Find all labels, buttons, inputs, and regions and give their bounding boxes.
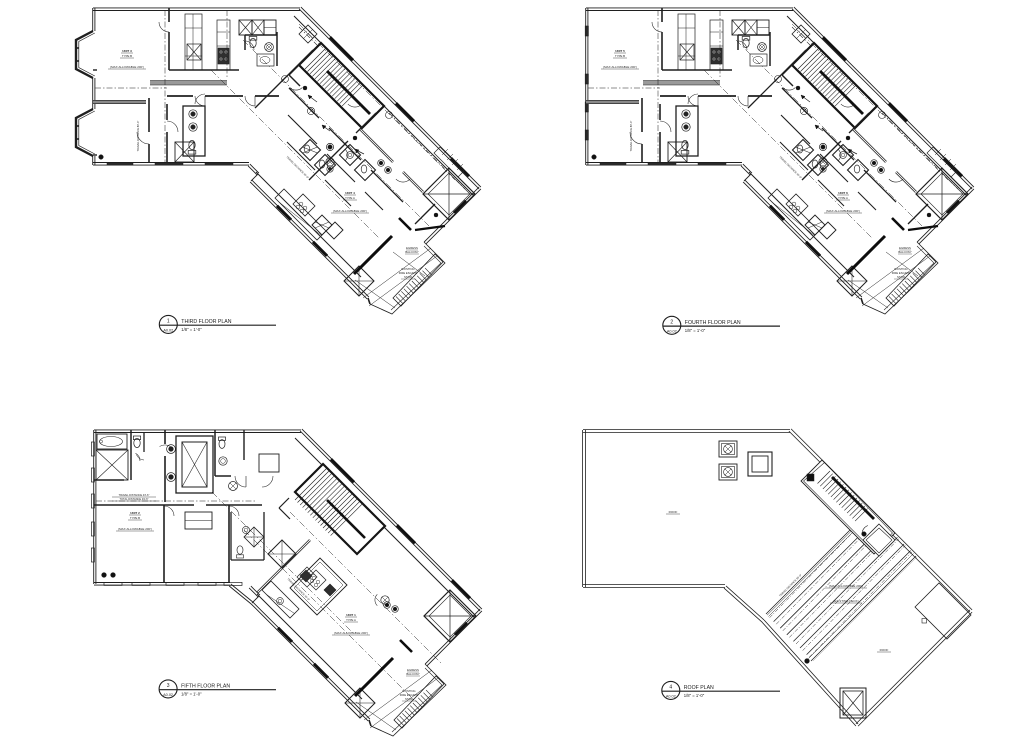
svg-text:BALCONY: BALCONY (406, 672, 420, 676)
svg-text:TYPE B: TYPE B (615, 54, 625, 58)
svg-text:BALCONY: BALCONY (405, 250, 419, 254)
svg-text:(MAX ALLOWABLE 200'): (MAX ALLOWABLE 200') (118, 527, 152, 531)
svg-text:ROOF PLAN: ROOF PLAN (684, 685, 714, 691)
svg-text:(MAX ALLOWABLE 200'): (MAX ALLOWABLE 200') (826, 209, 860, 213)
svg-text:A0.02: A0.02 (667, 329, 677, 333)
svg-text:FOURTH FLOOR PLAN: FOURTH FLOOR PLAN (685, 320, 741, 326)
svg-text:ROOF: ROOF (880, 648, 889, 652)
svg-text:STAIR: STAIR (897, 275, 905, 279)
svg-text:1/8" = 1'-0": 1/8" = 1'-0" (181, 691, 202, 696)
svg-text:TRAVEL DISTANCE 43'-6": TRAVEL DISTANCE 43'-6" (119, 493, 150, 497)
svg-text:(MAX ALLOWABLE 200'): (MAX ALLOWABLE 200') (829, 584, 863, 588)
svg-text:1/8" = 1'-0": 1/8" = 1'-0" (181, 327, 202, 332)
svg-text:3: 3 (167, 683, 170, 689)
svg-text:TOTAL DISTANCE 49'-6": TOTAL DISTANCE 49'-6" (120, 497, 149, 501)
svg-text:TYPE A: TYPE A (838, 196, 848, 200)
svg-text:TYPE A: TYPE A (345, 196, 355, 200)
svg-text:1/8" = 1'-0": 1/8" = 1'-0" (685, 328, 706, 333)
svg-text:(MAX ALLOWABLE 200'): (MAX ALLOWABLE 200') (333, 209, 367, 213)
svg-text:1: 1 (167, 318, 170, 324)
svg-text:TRAVEL DISTANCE 80'-0": TRAVEL DISTANCE 80'-0" (136, 121, 140, 152)
svg-text:A0.02: A0.02 (163, 693, 173, 697)
svg-text:TRAVEL DISTANCE 80'-0": TRAVEL DISTANCE 80'-0" (629, 121, 633, 152)
svg-text:FIFTH FLOOR PLAN: FIFTH FLOOR PLAN (181, 683, 230, 689)
svg-text:TYPE B: TYPE B (122, 54, 132, 58)
svg-text:UNIT 4: UNIT 4 (345, 191, 355, 195)
svg-text:(EXISTING DECK): (EXISTING DECK) (833, 599, 858, 603)
svg-text:UNIT 1: UNIT 1 (346, 613, 356, 617)
svg-text:4: 4 (669, 684, 672, 690)
svg-text:STAIR: STAIR (404, 275, 412, 279)
svg-text:A0.02: A0.02 (163, 328, 173, 332)
svg-text:UNIT 2: UNIT 2 (130, 511, 140, 515)
svg-text:A0.02: A0.02 (666, 694, 676, 698)
svg-text:TYPE B: TYPE B (130, 516, 140, 520)
svg-text:UNIT 6: UNIT 6 (838, 191, 848, 195)
svg-text:THIRD FLOOR PLAN: THIRD FLOOR PLAN (181, 319, 231, 325)
svg-text:STAIR: STAIR (405, 697, 413, 701)
svg-text:(MAX ALLOWABLE 200'): (MAX ALLOWABLE 200') (603, 65, 637, 69)
svg-text:1/8" = 1'-0": 1/8" = 1'-0" (684, 693, 705, 698)
svg-text:UNIT 5: UNIT 5 (615, 49, 625, 53)
svg-text:(MAX ALLOWABLE 200'): (MAX ALLOWABLE 200') (334, 631, 368, 635)
svg-text:TYPE A: TYPE A (346, 618, 356, 622)
svg-text:2: 2 (670, 319, 673, 325)
svg-text:(MAX ALLOWABLE 200'): (MAX ALLOWABLE 200') (110, 65, 144, 69)
svg-text:UNIT 3: UNIT 3 (122, 49, 132, 53)
svg-text:ROOF: ROOF (669, 510, 678, 514)
svg-text:BALCONY: BALCONY (898, 250, 912, 254)
